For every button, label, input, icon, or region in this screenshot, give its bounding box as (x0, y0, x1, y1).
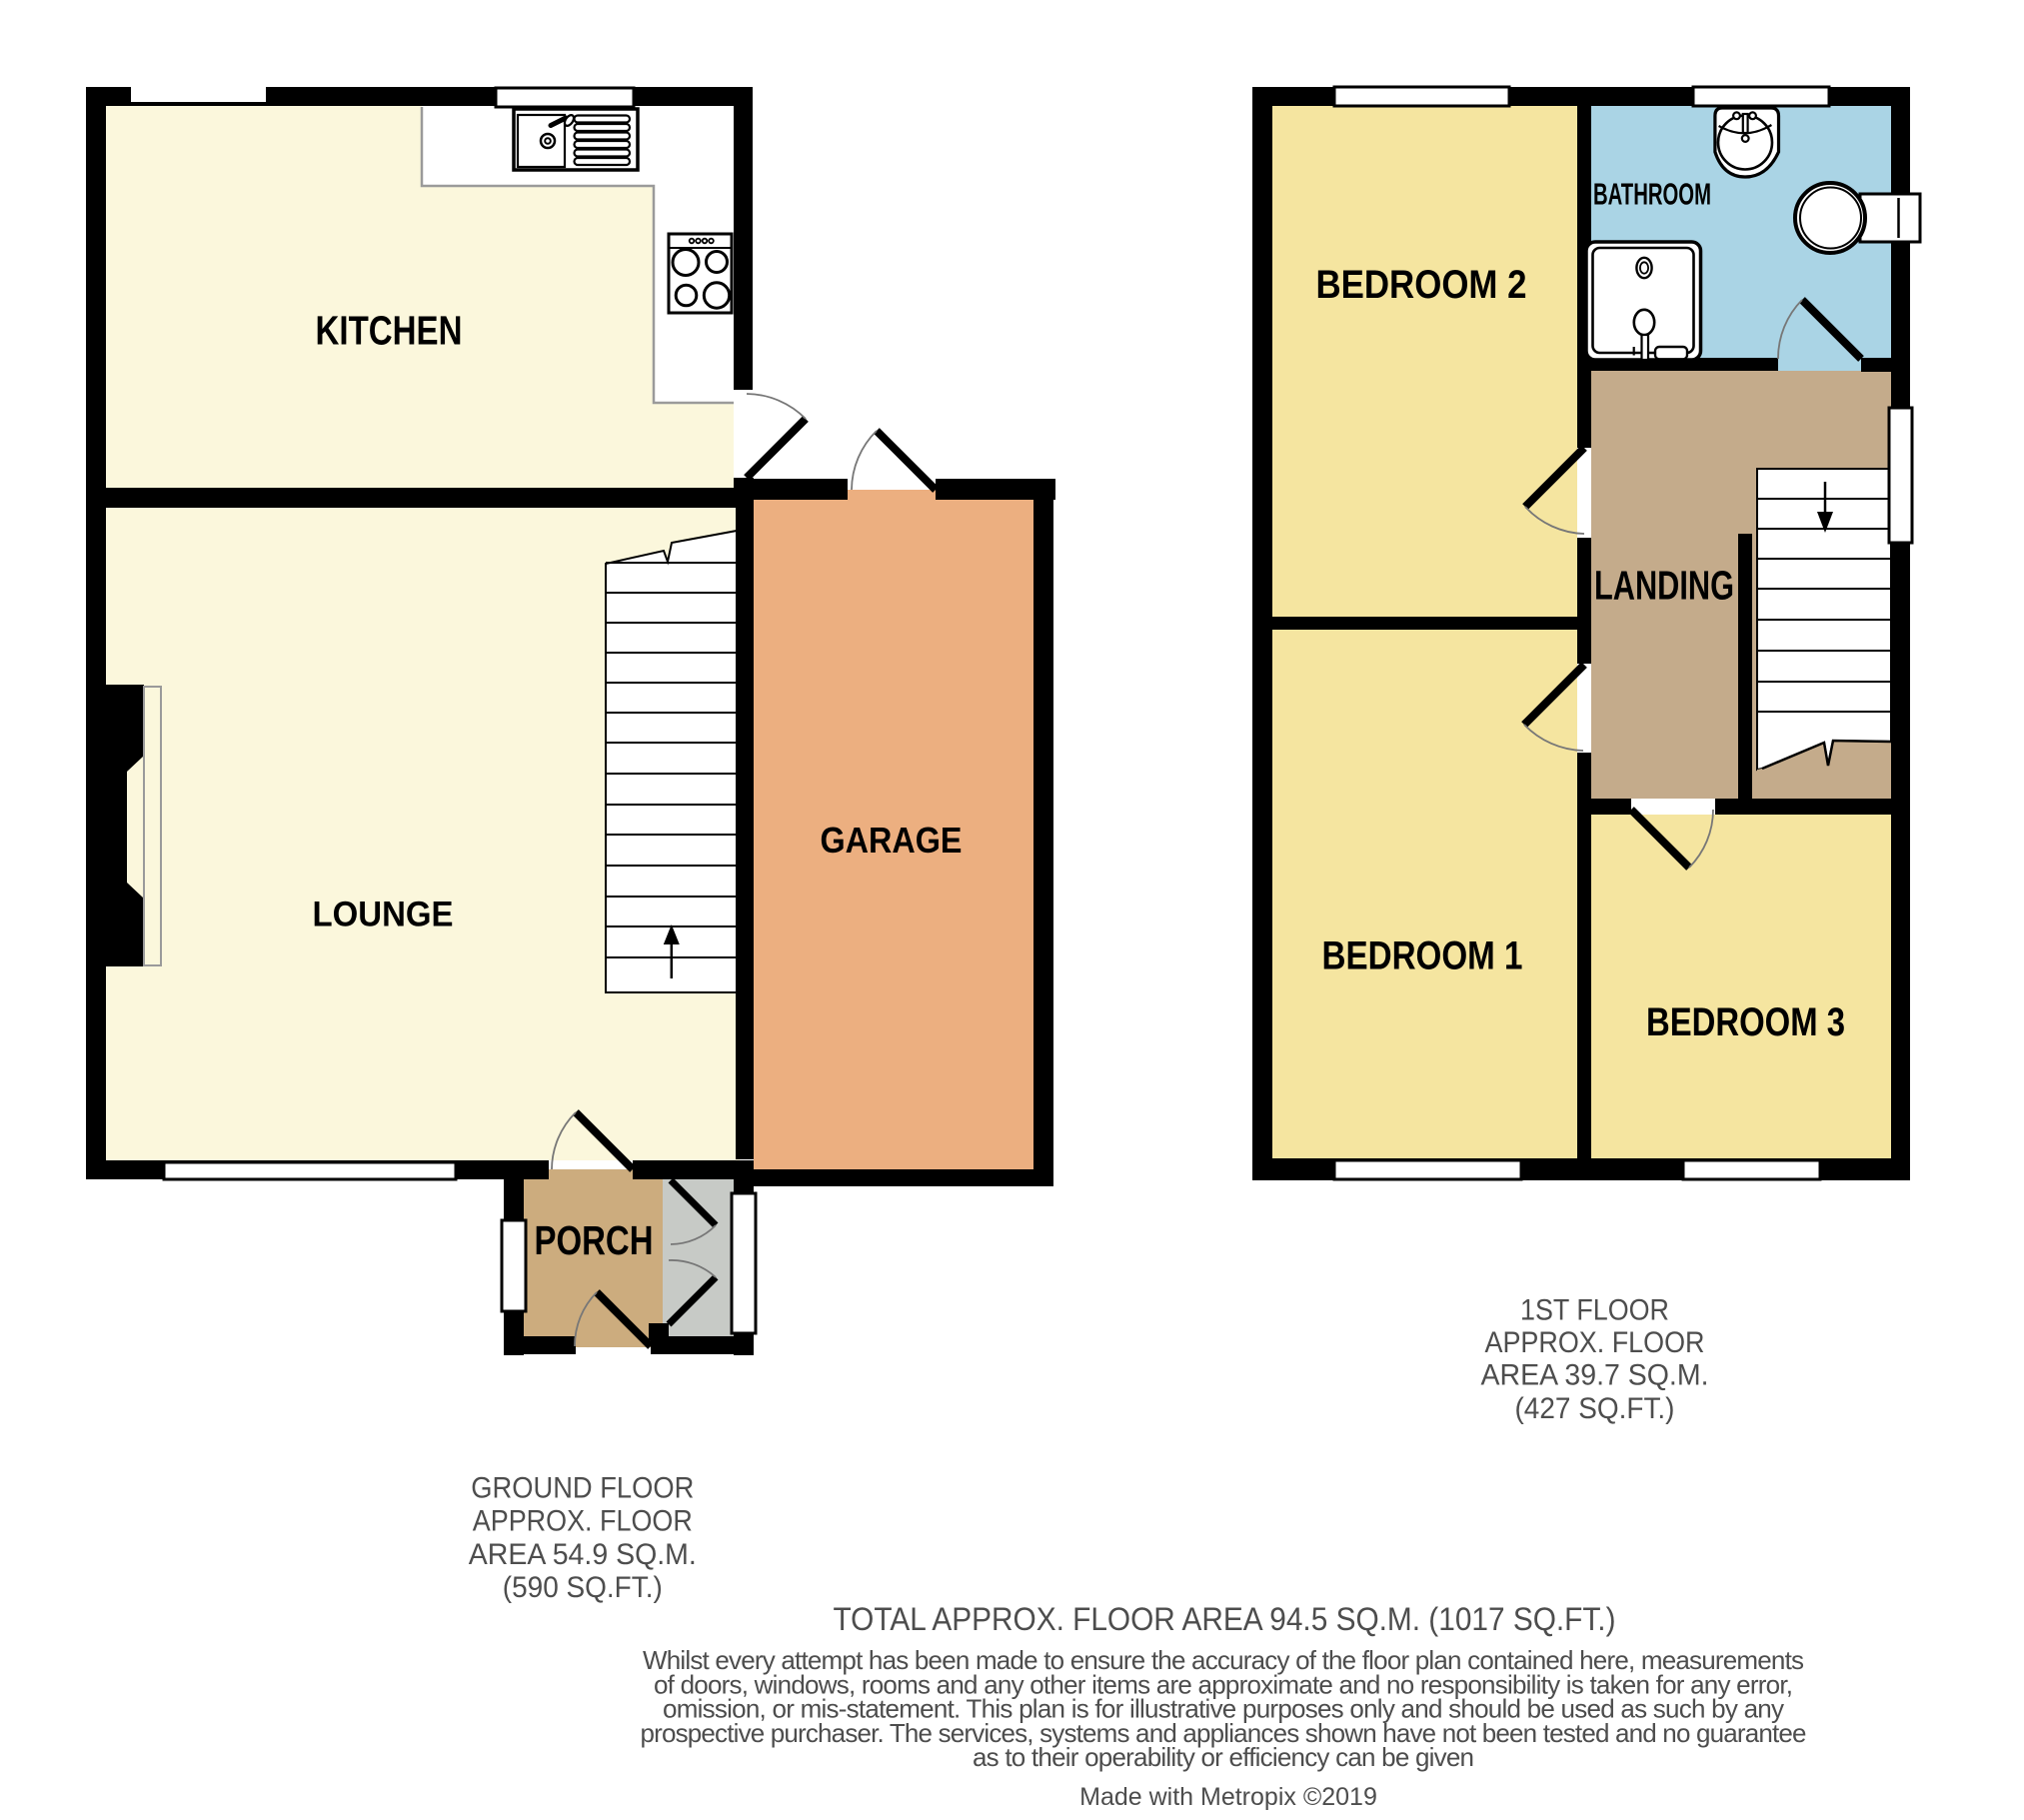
svg-text:APPROX. FLOOR: APPROX. FLOOR (1485, 1326, 1705, 1359)
svg-text:TOTAL APPROX. FLOOR AREA 94.5: TOTAL APPROX. FLOOR AREA 94.5 SQ.M. (101… (834, 1601, 1616, 1637)
svg-text:BEDROOM 2: BEDROOM 2 (1316, 263, 1527, 307)
svg-text:(590 SQ.FT.): (590 SQ.FT.) (503, 1571, 663, 1604)
svg-text:GROUND FLOOR: GROUND FLOOR (471, 1472, 694, 1505)
svg-text:BEDROOM 1: BEDROOM 1 (1322, 934, 1523, 978)
svg-text:1ST FLOOR: 1ST FLOOR (1520, 1293, 1669, 1326)
svg-text:BEDROOM 3: BEDROOM 3 (1646, 1000, 1845, 1044)
svg-text:as to their operability or eff: as to their operability or efficiency ca… (973, 1742, 1474, 1772)
svg-text:LOUNGE: LOUNGE (313, 896, 454, 934)
svg-text:PORCH: PORCH (535, 1217, 654, 1263)
svg-text:APPROX. FLOOR: APPROX. FLOOR (473, 1505, 693, 1538)
svg-text:LANDING: LANDING (1594, 563, 1734, 609)
svg-text:(427 SQ.FT.): (427 SQ.FT.) (1515, 1392, 1675, 1425)
svg-text:KITCHEN: KITCHEN (316, 308, 463, 354)
svg-text:GARAGE: GARAGE (821, 820, 963, 861)
svg-text:AREA 39.7 SQ.M.: AREA 39.7 SQ.M. (1481, 1359, 1709, 1392)
svg-text:AREA 54.9 SQ.M.: AREA 54.9 SQ.M. (469, 1538, 697, 1571)
svg-text:BATHROOM: BATHROOM (1593, 177, 1711, 212)
svg-text:Made with Metropix ©2019: Made with Metropix ©2019 (1079, 1783, 1377, 1811)
